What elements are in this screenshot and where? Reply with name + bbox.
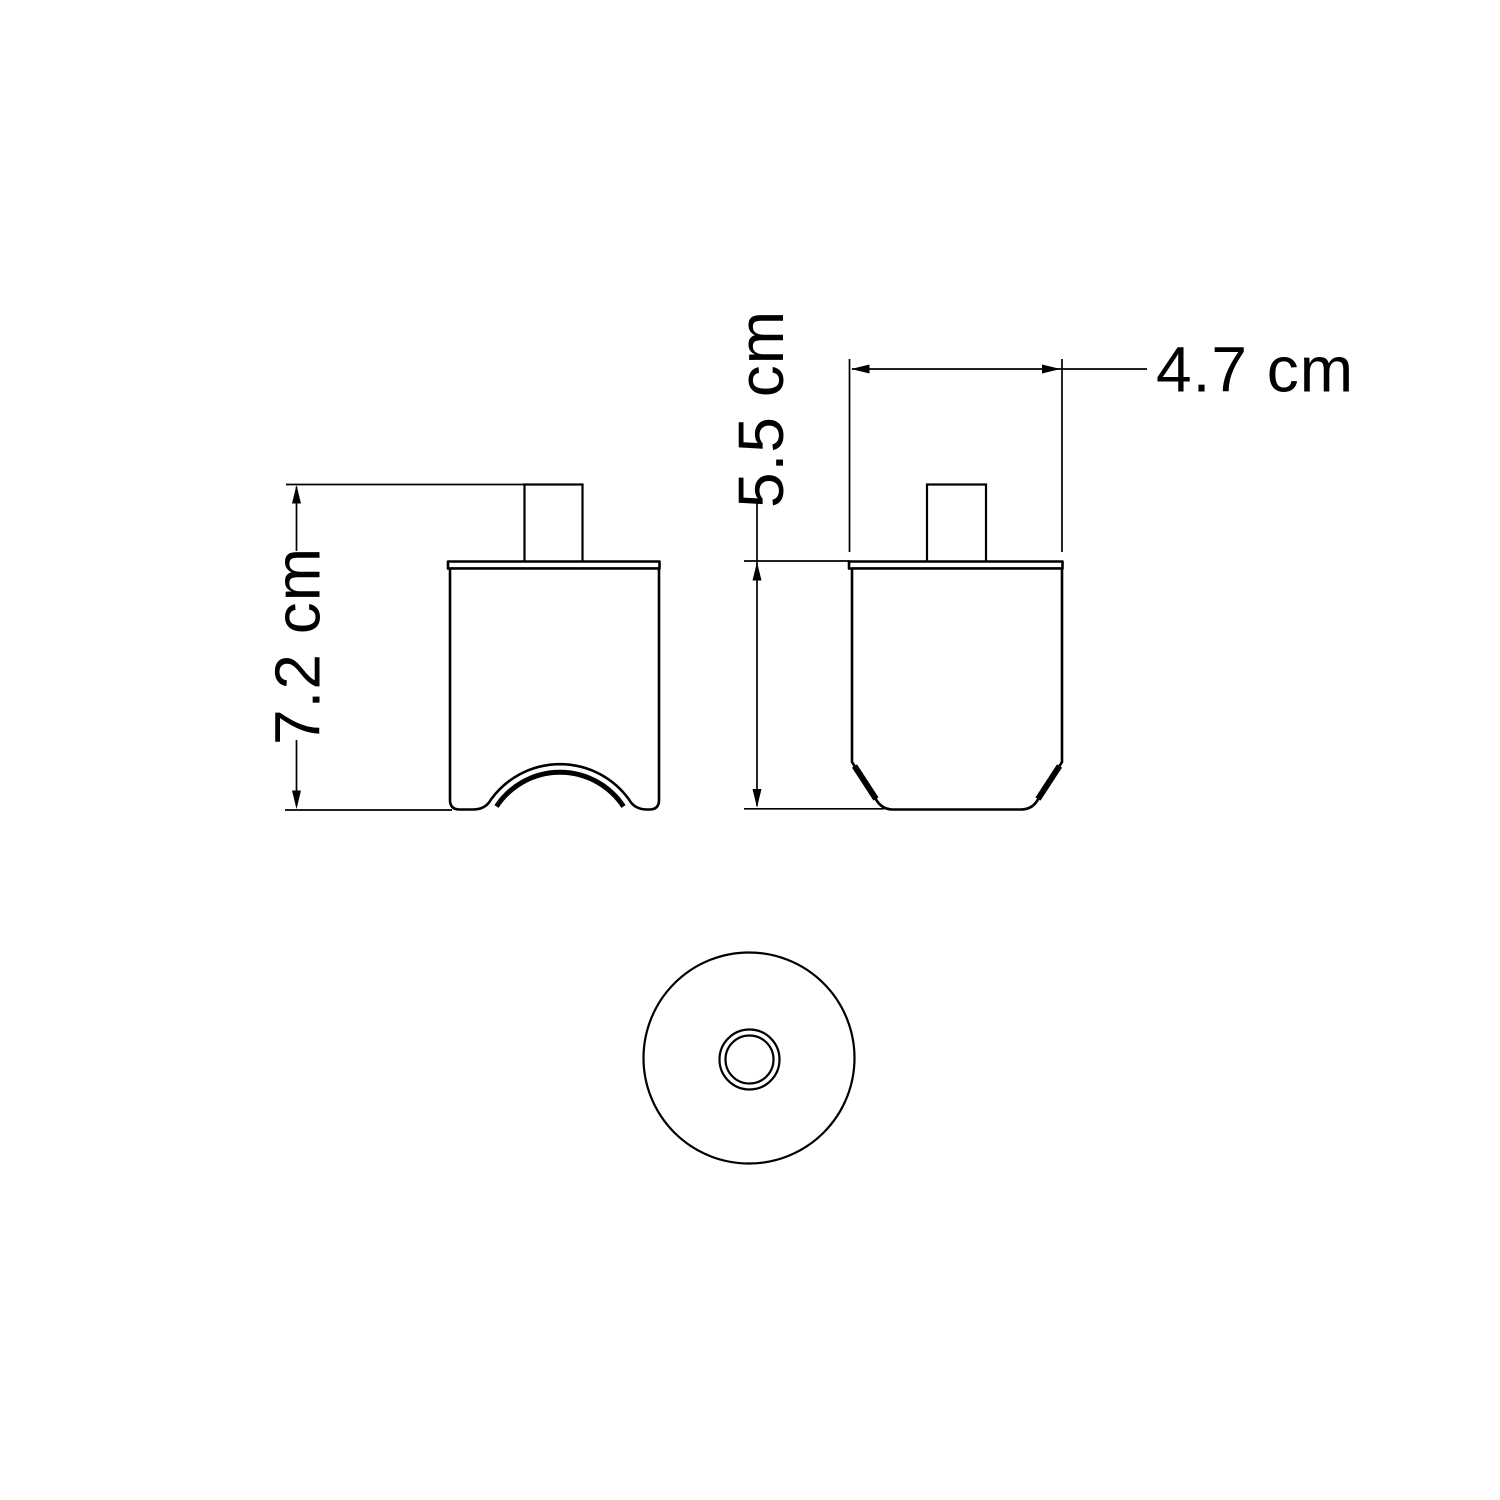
bottom-hole-inner-ring [726,1036,774,1084]
drawing-canvas: 7.2 cm 5.5 cm 4.7 cm [0,0,1500,1500]
dimension-label-body-height: 5.5 cm [725,310,797,508]
side-body [852,569,1062,810]
arrowhead-right [1042,365,1061,374]
technical-drawing: 7.2 cm 5.5 cm 4.7 cm [0,0,1500,1500]
side-view [849,485,1063,810]
dimension-label-body-width: 4.7 cm [1156,334,1354,406]
bottom-view [644,953,855,1164]
dimension-body-width: 4.7 cm [850,334,1355,553]
arrowhead-up [292,485,301,504]
arrowhead-down [292,791,301,810]
front-stem [525,485,583,563]
arrowhead-down [753,789,762,808]
front-view [448,485,660,810]
side-stem [927,485,986,563]
dimension-label-total-height: 7.2 cm [262,547,334,745]
arrowhead-up [753,562,762,581]
arrowhead-left [851,365,870,374]
